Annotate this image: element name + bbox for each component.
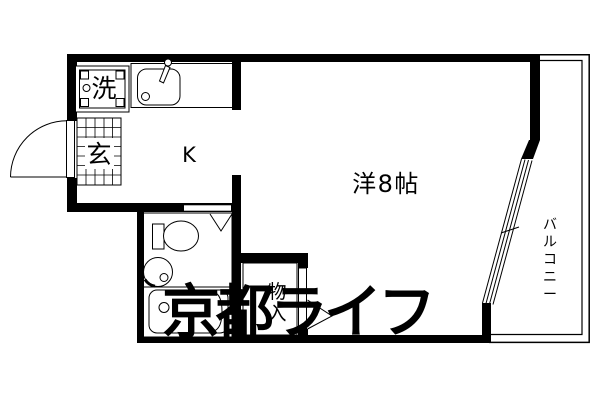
toilet-bowl — [164, 221, 199, 251]
kitchen-sink — [131, 59, 233, 108]
pan-corner-tr — [116, 71, 124, 79]
pan-corner-tl — [81, 71, 89, 79]
toilet-tank — [153, 224, 165, 249]
faucet-base — [165, 59, 172, 66]
window-glass-lines — [483, 159, 533, 305]
sink-drain — [142, 93, 150, 101]
watermark-text: 京都ライフ — [162, 278, 432, 346]
laundry-pan: 洗 — [76, 66, 130, 112]
floorplan-svg: 玄 洗 物入 K — [0, 0, 600, 400]
floorplan-image: 玄 洗 物入 K — [0, 0, 600, 400]
bathroom-door — [184, 205, 232, 211]
pan-drain — [83, 85, 90, 92]
balcony-window — [483, 159, 533, 305]
entrance-tile: 玄 — [77, 118, 121, 185]
entrance-label: 玄 — [86, 140, 111, 169]
pan-corner-bl — [81, 99, 89, 107]
kitchen-label: K — [182, 143, 197, 167]
main-room-label: 洋8帖 — [352, 170, 420, 198]
laundry-label: 洗 — [91, 74, 116, 103]
balcony-label: バルコニー — [543, 217, 557, 303]
pan-corner-br — [116, 99, 124, 107]
door-swing-arc — [11, 121, 68, 177]
door-leaf — [67, 121, 75, 178]
entrance-door — [11, 121, 75, 178]
